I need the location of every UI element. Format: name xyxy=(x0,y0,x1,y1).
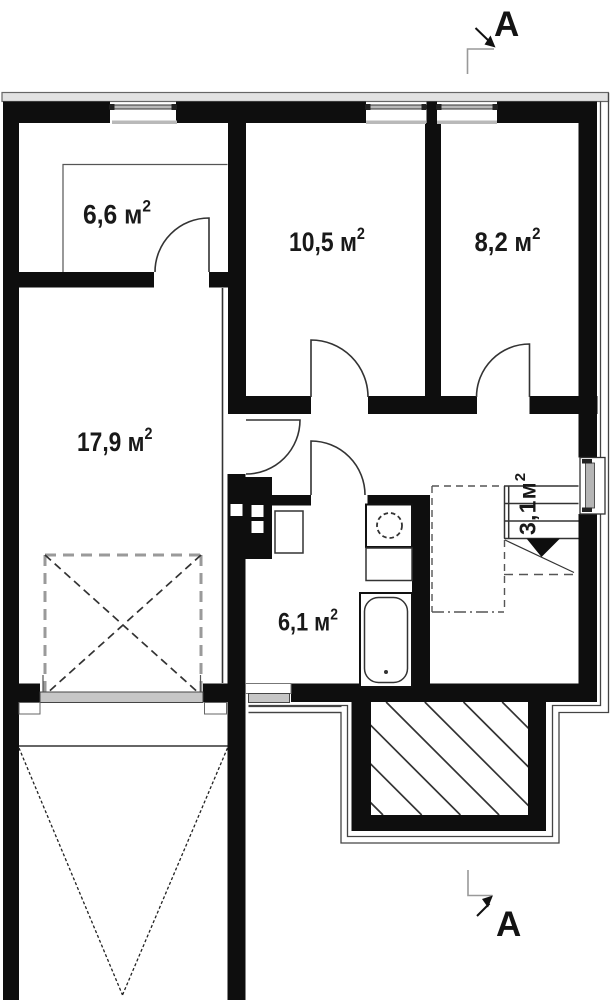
svg-text:10,5 м2: 10,5 м2 xyxy=(289,225,365,257)
svg-text:8,2 м2: 8,2 м2 xyxy=(475,224,541,257)
svg-text:6,6 м2: 6,6 м2 xyxy=(83,197,151,230)
svg-text:A: A xyxy=(496,905,521,944)
svg-text:6,1 м2: 6,1 м2 xyxy=(278,606,338,636)
svg-text:A: A xyxy=(494,5,519,44)
svg-text:17,9 м2: 17,9 м2 xyxy=(77,425,153,458)
